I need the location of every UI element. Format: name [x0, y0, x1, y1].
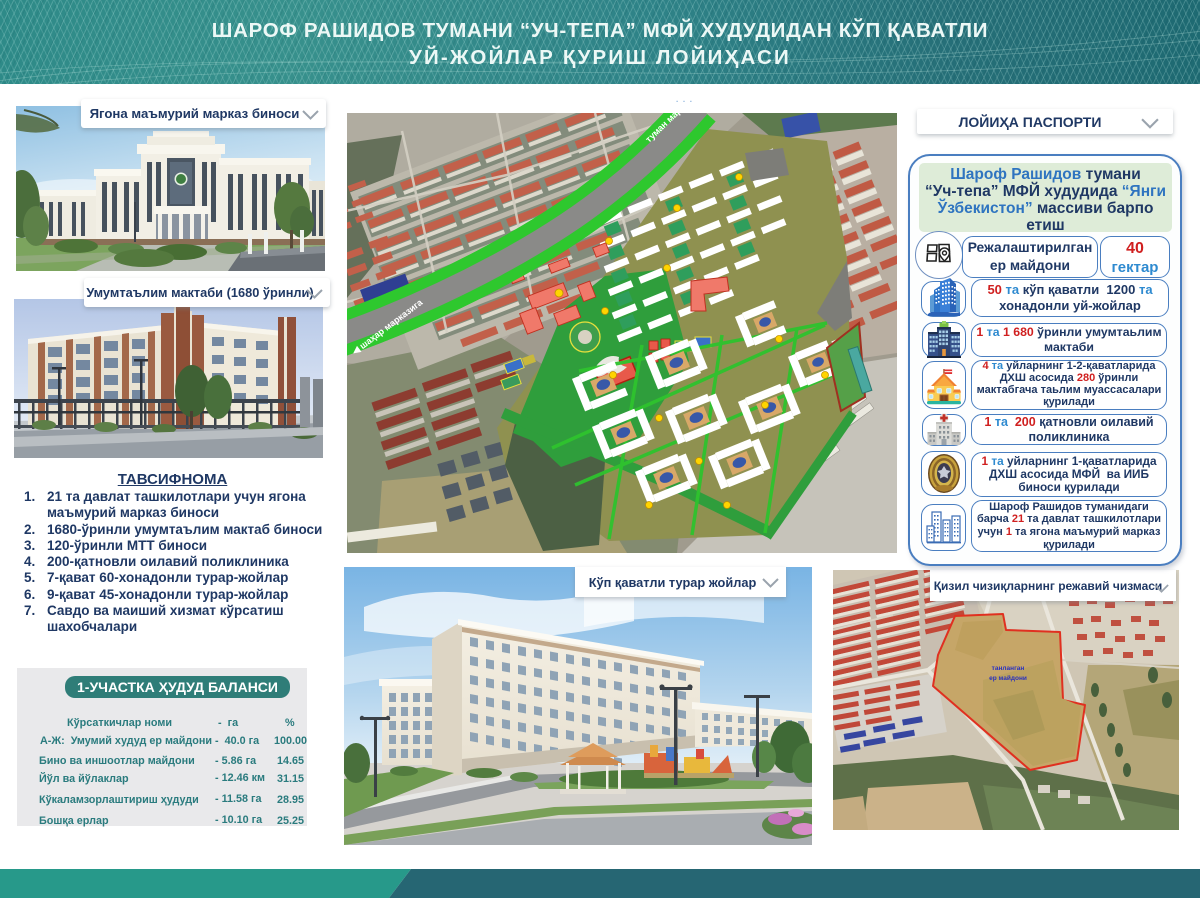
svg-text:танланган: танланган	[992, 665, 1025, 672]
svg-text:ер майдони: ер майдони	[989, 674, 1027, 682]
